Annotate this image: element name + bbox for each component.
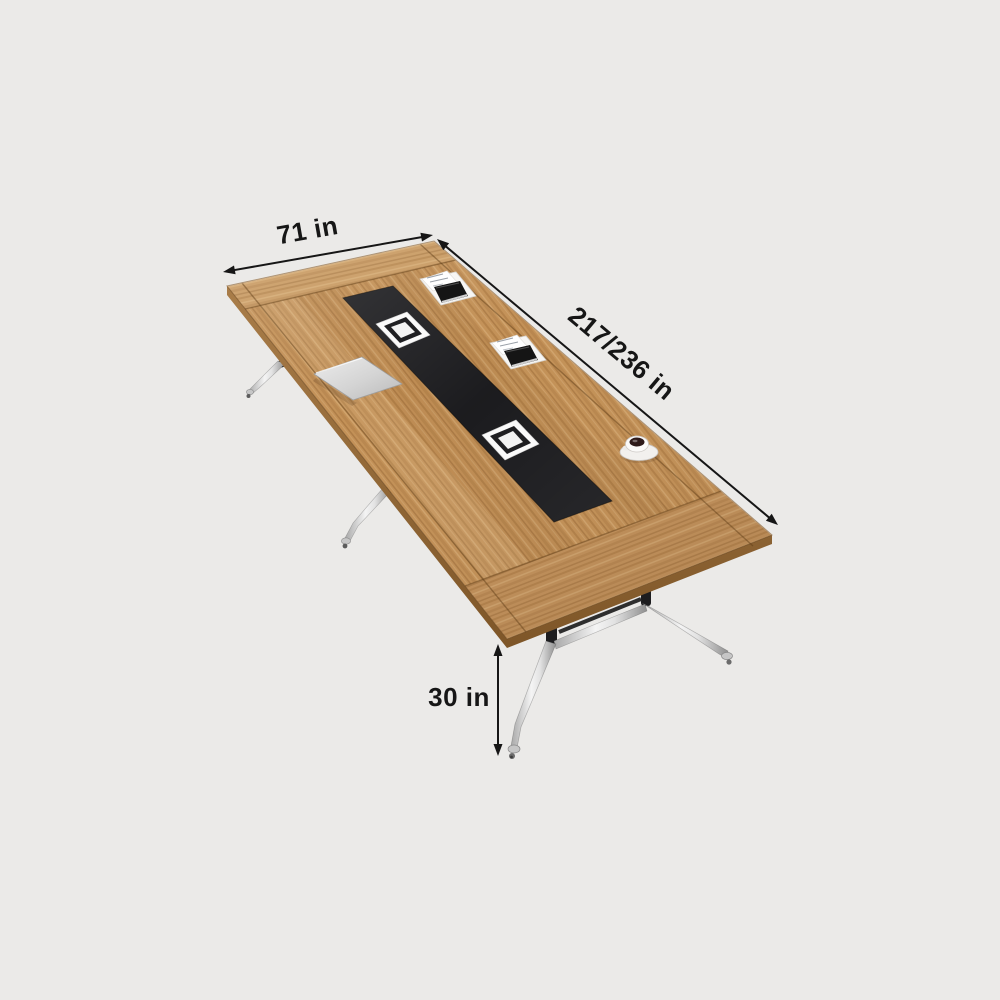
leg-caster — [726, 659, 731, 664]
leg-foot — [508, 745, 520, 753]
coffee-highlight — [633, 440, 638, 442]
height-dimension-label: 30 in — [428, 682, 490, 712]
leg-foot — [246, 389, 253, 394]
leg-foot — [722, 652, 733, 659]
coffee — [630, 438, 645, 447]
conference-table-render: 71 in 217/236 in 30 in — [0, 0, 1000, 1000]
leg-caster — [247, 394, 251, 398]
leg-caster — [343, 544, 348, 549]
leg-foot — [341, 538, 350, 544]
leg-caster-hub — [510, 756, 513, 759]
product-dimension-diagram: 71 in 217/236 in 30 in — [0, 0, 1000, 1000]
